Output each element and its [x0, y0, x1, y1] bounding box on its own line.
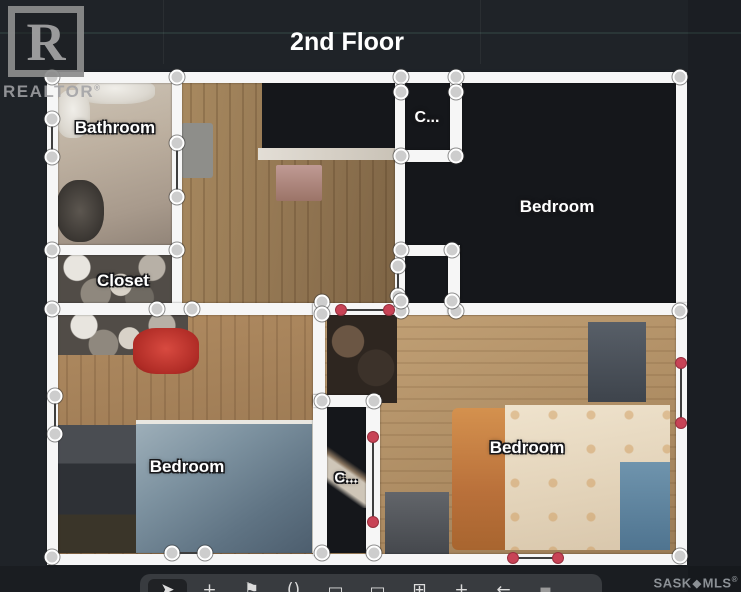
rectangle-tool-2[interactable]: ▭ [358, 579, 397, 592]
wall-node[interactable] [449, 149, 464, 164]
grid-tool-icon: ⊞ [412, 582, 426, 592]
saskmls-watermark: SASK◆MLS® [654, 575, 738, 590]
wall-node[interactable] [170, 243, 185, 258]
wall-node[interactable] [391, 259, 406, 274]
wall-segment[interactable] [47, 72, 687, 83]
wall-node[interactable] [48, 389, 63, 404]
realtor-logo-letter: R [27, 11, 66, 73]
wall-node[interactable] [394, 243, 409, 258]
hallway-unscanned-area [262, 80, 398, 150]
room-label-bathroom[interactable]: Bathroom [75, 118, 155, 138]
realtor-watermark: REALTOR® [3, 82, 100, 102]
wall-node[interactable] [45, 243, 60, 258]
hallway-ledge [258, 148, 398, 160]
nightstand [588, 322, 646, 402]
bedroom-top-right-unscanned [400, 80, 678, 310]
wall-node[interactable] [367, 394, 382, 409]
wall-node[interactable] [445, 243, 460, 258]
door-marker [341, 309, 389, 311]
room-label-bedroom[interactable]: Bedroom [520, 197, 595, 217]
page-title: 2nd Floor [290, 28, 404, 57]
door-endpoint[interactable] [367, 431, 379, 443]
wall-node[interactable] [449, 85, 464, 100]
bed-right-pillow [452, 408, 510, 550]
wall-node[interactable] [170, 136, 185, 151]
bottom-toolbar: ➤+⚑()▭▭⊞+←■ [140, 574, 602, 592]
wall-node[interactable] [45, 150, 60, 165]
saskmls-text-mls: MLS [703, 575, 732, 590]
color-swatch-icon: ■ [539, 586, 551, 592]
wall-node[interactable] [45, 302, 60, 317]
room-label-bedroom[interactable]: Bedroom [150, 457, 225, 477]
wall-node[interactable] [45, 112, 60, 127]
wall-node[interactable] [45, 550, 60, 565]
add-tool-2-icon: + [454, 582, 468, 592]
add-tool-2[interactable]: + [442, 579, 481, 592]
registered-mark: ® [94, 83, 100, 92]
room-label-c[interactable]: C... [334, 470, 357, 487]
floor-plan-editor: 2nd Floor R REALTOR® BathroomC...Bedroom… [0, 0, 741, 592]
red-jacket [133, 328, 199, 374]
wall-node[interactable] [673, 549, 688, 564]
wall-node[interactable] [185, 302, 200, 317]
hallway-mat [181, 123, 213, 178]
wall-node[interactable] [394, 294, 409, 309]
color-swatch[interactable]: ■ [526, 579, 565, 592]
realtor-watermark-text: REALTOR [3, 82, 94, 101]
door-marker [680, 363, 682, 423]
blue-blanket [620, 462, 670, 550]
rectangle-tool-icon: ▭ [327, 582, 343, 592]
wall-segment[interactable] [676, 72, 687, 565]
diamond-icon: ◆ [693, 578, 702, 590]
wall-node[interactable] [170, 70, 185, 85]
select-tool[interactable]: ➤ [148, 579, 187, 592]
parentheses-tool-icon: () [287, 582, 300, 592]
bathroom-clutter [56, 180, 104, 242]
bed-left [136, 420, 316, 553]
undo-tool-icon: ← [496, 582, 510, 592]
hallway-table [276, 165, 322, 201]
desk-chair [385, 492, 449, 554]
room-label-bedroom[interactable]: Bedroom [490, 438, 565, 458]
door-marker [372, 437, 374, 522]
wall-node[interactable] [445, 294, 460, 309]
door-endpoint[interactable] [507, 552, 519, 564]
bedroom-right-clutter [327, 315, 397, 403]
wall-node[interactable] [170, 190, 185, 205]
door-endpoint[interactable] [675, 417, 687, 429]
wall-node[interactable] [150, 302, 165, 317]
door-endpoint[interactable] [367, 516, 379, 528]
registered-mark: ® [732, 575, 738, 584]
grid-tool[interactable]: ⊞ [400, 579, 439, 592]
rectangle-tool-2-icon: ▭ [369, 582, 385, 592]
wall-node[interactable] [198, 546, 213, 561]
add-point-tool[interactable]: + [190, 579, 229, 592]
select-tool-icon: ➤ [160, 582, 174, 592]
flag-tool[interactable]: ⚑ [232, 579, 271, 592]
door-endpoint[interactable] [675, 357, 687, 369]
wall-node[interactable] [315, 394, 330, 409]
wall-node[interactable] [165, 546, 180, 561]
wall-node[interactable] [449, 70, 464, 85]
wall-node[interactable] [315, 307, 330, 322]
room-label-c[interactable]: C... [415, 109, 440, 127]
undo-tool[interactable]: ← [484, 579, 523, 592]
wall-node[interactable] [394, 85, 409, 100]
door-endpoint[interactable] [552, 552, 564, 564]
wall-node[interactable] [367, 546, 382, 561]
rectangle-tool[interactable]: ▭ [316, 579, 355, 592]
flag-tool-icon: ⚑ [244, 582, 259, 592]
door-endpoint[interactable] [335, 304, 347, 316]
door-endpoint[interactable] [383, 304, 395, 316]
wall-segment[interactable] [313, 395, 327, 555]
wall-node[interactable] [394, 149, 409, 164]
wall-node[interactable] [315, 546, 330, 561]
wall-node[interactable] [48, 427, 63, 442]
saskmls-text-sask: SASK [654, 575, 692, 590]
wall-node[interactable] [673, 70, 688, 85]
parentheses-tool[interactable]: () [274, 579, 313, 592]
realtor-logo-icon: R [8, 6, 84, 77]
wall-node[interactable] [673, 304, 688, 319]
add-point-tool-icon: + [202, 582, 216, 592]
dresser [54, 425, 142, 553]
room-label-closet[interactable]: Closet [97, 271, 149, 291]
wall-node[interactable] [394, 70, 409, 85]
wall-segment[interactable] [47, 245, 182, 255]
floor-plan-canvas[interactable]: BathroomC...BedroomClosetBedroomC...Bedr… [0, 0, 741, 592]
